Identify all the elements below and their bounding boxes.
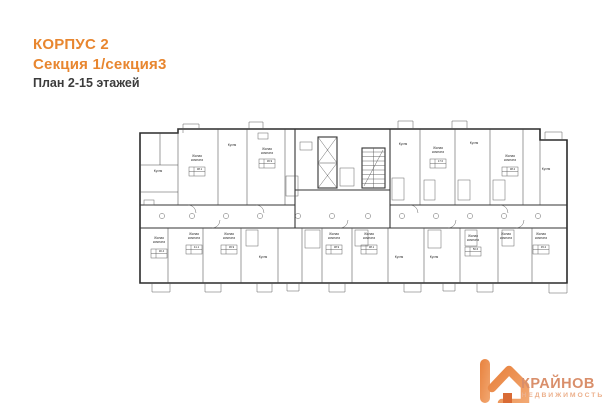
room-label: Кухня xyxy=(154,169,163,173)
room-label: Жилаякомната xyxy=(535,232,547,240)
elevator-shaft xyxy=(318,137,337,188)
room-label: Жилаякомната xyxy=(504,154,516,162)
corridor-walls xyxy=(140,190,567,228)
room-label: Жилаякомната xyxy=(363,232,375,240)
room-label: Жилаякомната xyxy=(467,234,479,242)
room-label: Жилаякомната xyxy=(188,232,200,240)
area-value: 45.2 xyxy=(541,245,547,249)
outer-wall xyxy=(140,129,567,283)
room-label: Кухня xyxy=(542,167,551,171)
room-label: Жилаякомната xyxy=(153,236,165,244)
room-label: Кухня xyxy=(430,255,439,259)
k-house-icon xyxy=(480,359,525,403)
logo-name: КРАЙНОВ xyxy=(521,374,595,392)
area-value: 41.1 xyxy=(194,245,200,249)
bottom-balconies xyxy=(152,283,567,293)
logo: КРАЙНОВ НЕДВИЖИМОСТЬ xyxy=(480,359,604,403)
top-balconies xyxy=(183,121,562,140)
room-label: Жилаякомната xyxy=(191,154,203,162)
area-value: 17.0 xyxy=(438,159,444,163)
room-label: Жилаякомната xyxy=(223,232,235,240)
room-label: Кухня xyxy=(395,255,404,259)
room-label: Жилаякомната xyxy=(328,232,340,240)
room-label: Кухня xyxy=(259,255,268,259)
area-value: 38.1 xyxy=(197,167,203,171)
room-label: Кухня xyxy=(470,141,479,145)
staircase xyxy=(362,148,385,188)
room-label: Жилаякомната xyxy=(432,146,444,154)
door-arcs xyxy=(188,205,524,228)
area-value: 36.9 xyxy=(267,159,273,163)
room-label: Жилаякомната xyxy=(261,147,273,155)
area-value: 30.4 xyxy=(159,249,165,253)
apartment-number-circles xyxy=(159,213,540,218)
area-value: 38.2 xyxy=(510,167,516,171)
area-value: 38.1 xyxy=(369,245,375,249)
area-value: 36.9 xyxy=(229,245,235,249)
logo-door xyxy=(503,393,512,403)
area-value: 38.9 xyxy=(334,245,340,249)
floor-plan: КухняЖилаякомнатаКухняЖилаякомнатаКухняЖ… xyxy=(0,0,605,403)
logo-subtitle: НЕДВИЖИМОСТЬ xyxy=(522,392,605,399)
room-label: Кухня xyxy=(399,142,408,146)
room-label: Кухня xyxy=(228,143,237,147)
area-value: 50.6 xyxy=(473,247,479,251)
area-tables: 38.136.917.038.230.441.136.938.938.150.6… xyxy=(151,159,549,258)
room-label: Жилаякомната xyxy=(500,232,512,240)
